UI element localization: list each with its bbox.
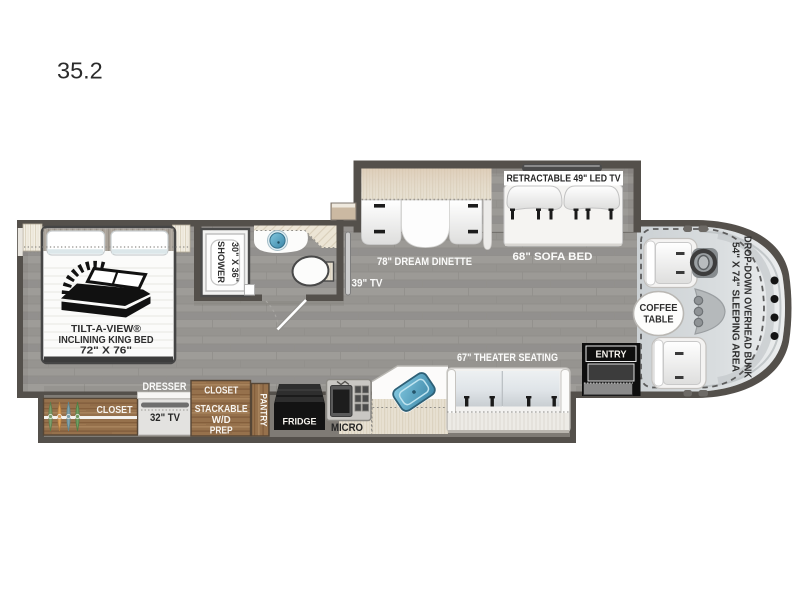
svg-text:DROP-DOWN OVERHEAD BUNK: DROP-DOWN OVERHEAD BUNK (742, 236, 753, 379)
svg-text:67" THEATER SEATING: 67" THEATER SEATING (457, 352, 558, 364)
svg-text:MICRO: MICRO (331, 422, 363, 434)
svg-text:54" X 74" SLEEPING AREA: 54" X 74" SLEEPING AREA (730, 242, 741, 373)
svg-text:TILT-A-VIEW®: TILT-A-VIEW® (71, 324, 141, 335)
svg-text:DRESSER: DRESSER (143, 381, 187, 393)
svg-text:ENTRY: ENTRY (596, 350, 627, 361)
svg-text:72" X 76": 72" X 76" (80, 346, 132, 357)
svg-text:32" TV: 32" TV (150, 412, 180, 424)
svg-text:COFFEE: COFFEE (640, 303, 678, 314)
svg-text:CLOSET: CLOSET (97, 405, 133, 416)
svg-text:W/D: W/D (212, 415, 231, 426)
svg-text:FRIDGE: FRIDGE (283, 417, 318, 428)
svg-text:STACKABLE: STACKABLE (195, 404, 248, 415)
svg-text:68" SOFA BED: 68" SOFA BED (513, 251, 593, 263)
svg-text:PREP: PREP (210, 425, 233, 436)
svg-text:RETRACTABLE 49" LED TV: RETRACTABLE 49" LED TV (507, 174, 621, 185)
svg-text:CLOSET: CLOSET (204, 386, 238, 397)
svg-text:78" DREAM DINETTE: 78" DREAM DINETTE (377, 256, 472, 268)
svg-text:SHOWER: SHOWER (215, 241, 226, 283)
svg-text:TABLE: TABLE (644, 315, 674, 326)
svg-text:30" X 36": 30" X 36" (229, 242, 240, 282)
svg-text:PANTRY: PANTRY (257, 394, 268, 428)
svg-text:35.2: 35.2 (57, 58, 103, 84)
svg-text:39" TV: 39" TV (352, 278, 383, 290)
svg-text:INCLINING KING BED: INCLINING KING BED (59, 335, 154, 346)
